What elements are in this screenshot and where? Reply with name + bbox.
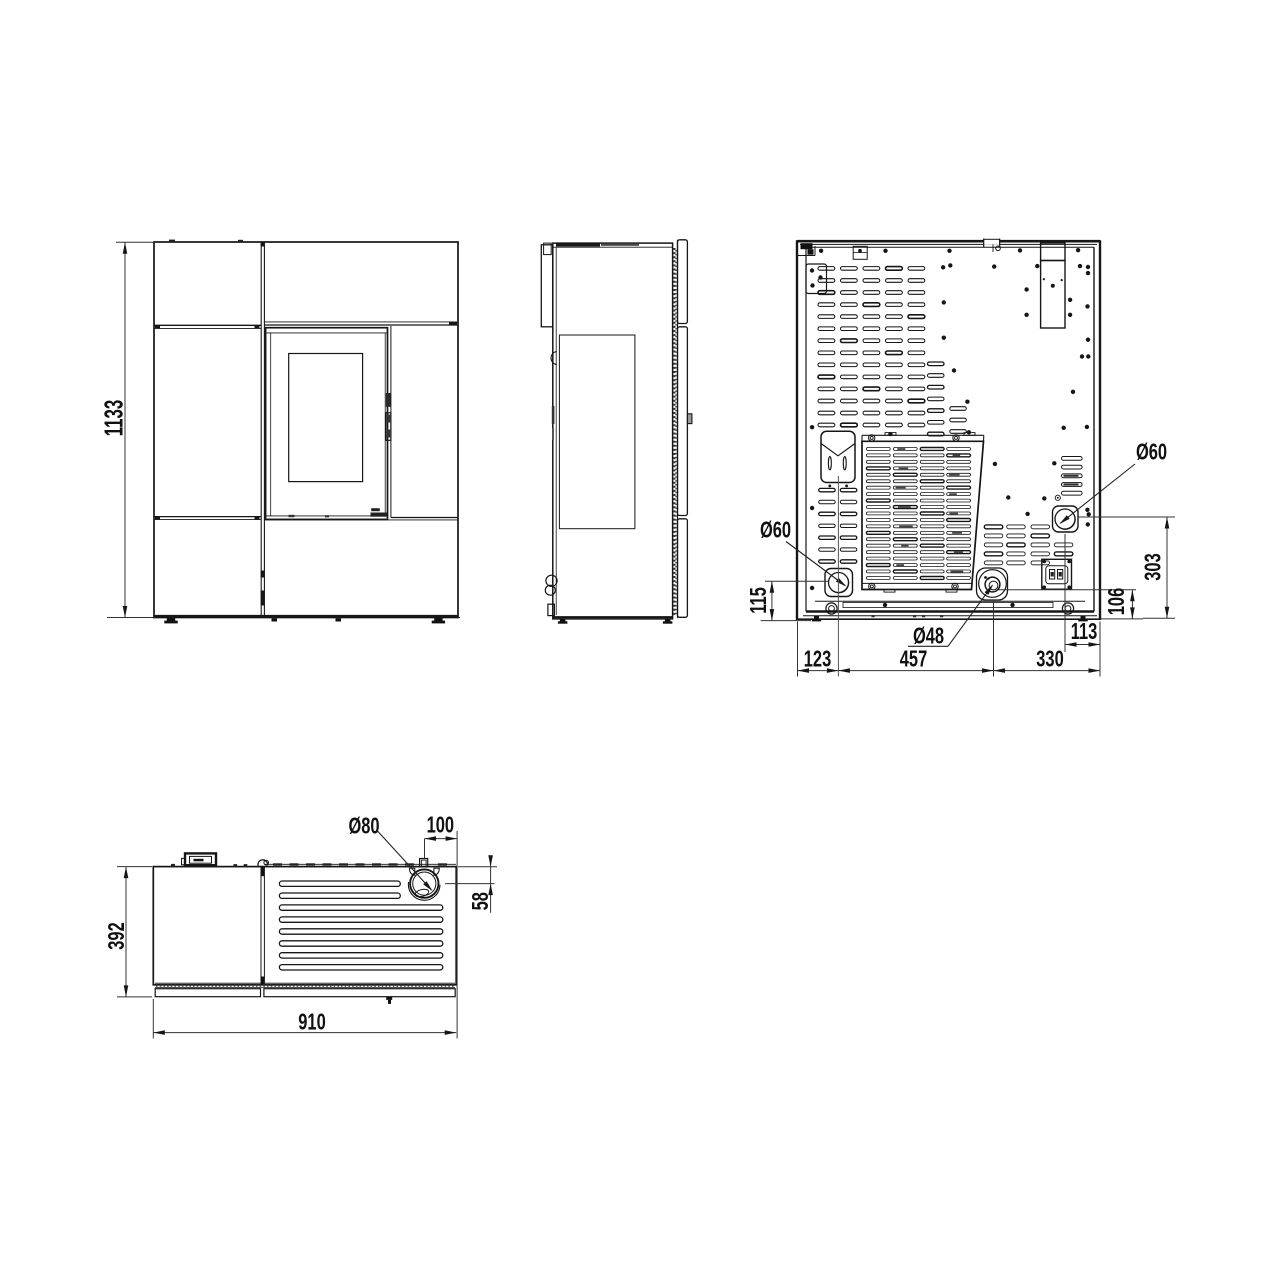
svg-text:330: 330	[1036, 647, 1063, 672]
svg-text:Ø60: Ø60	[1136, 440, 1167, 465]
svg-text:1133: 1133	[99, 400, 129, 437]
svg-text:457: 457	[900, 647, 927, 672]
svg-text:100: 100	[427, 813, 454, 838]
svg-text:123: 123	[804, 647, 831, 672]
svg-text:Ø60: Ø60	[760, 518, 791, 543]
svg-text:Ø48: Ø48	[913, 624, 944, 649]
svg-text:106: 106	[1104, 588, 1129, 615]
svg-text:58: 58	[468, 892, 493, 910]
svg-text:115: 115	[746, 587, 771, 614]
svg-text:113: 113	[1071, 619, 1098, 644]
svg-text:392: 392	[104, 922, 129, 949]
svg-text:303: 303	[1141, 553, 1166, 580]
svg-text:910: 910	[298, 1010, 325, 1035]
svg-text:Ø80: Ø80	[348, 814, 379, 839]
